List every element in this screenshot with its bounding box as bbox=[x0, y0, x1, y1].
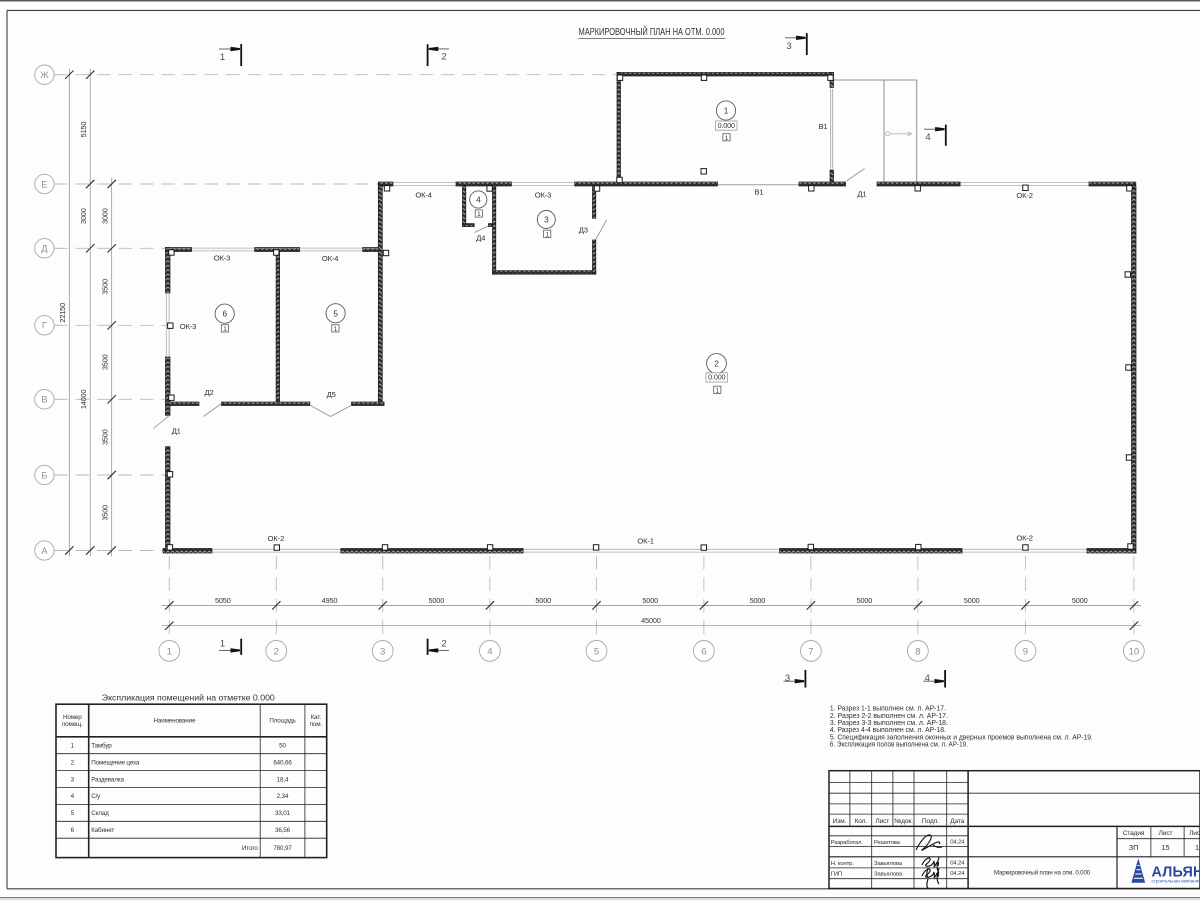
svg-text:5000: 5000 bbox=[642, 596, 658, 605]
svg-text:ОК-4: ОК-4 bbox=[322, 254, 338, 263]
svg-text:ОК-3: ОК-3 bbox=[535, 191, 551, 200]
svg-text:Склад: Склад bbox=[91, 810, 109, 817]
svg-text:36,56: 36,56 bbox=[275, 827, 291, 834]
svg-text:ОК-2: ОК-2 bbox=[1016, 533, 1032, 542]
svg-text:строительная компания: строительная компания bbox=[1152, 879, 1200, 884]
svg-text:1: 1 bbox=[725, 135, 729, 142]
svg-text:4: 4 bbox=[487, 646, 493, 657]
svg-text:4: 4 bbox=[476, 195, 481, 205]
svg-text:45000: 45000 bbox=[641, 616, 661, 625]
svg-text:Подп.: Подп. bbox=[922, 818, 939, 825]
svg-text:В: В bbox=[41, 395, 47, 405]
svg-text:2,34: 2,34 bbox=[277, 793, 289, 800]
svg-text:Наименование: Наименование bbox=[153, 718, 195, 725]
svg-text:22150: 22150 bbox=[58, 303, 67, 323]
svg-text:ЗП: ЗП bbox=[1129, 843, 1138, 852]
svg-text:Г: Г bbox=[42, 321, 47, 331]
svg-text:5000: 5000 bbox=[750, 596, 766, 605]
svg-text:Д: Д bbox=[41, 244, 48, 254]
svg-text:5150: 5150 bbox=[79, 122, 88, 138]
svg-text:Кат.: Кат. bbox=[311, 714, 322, 721]
svg-text:Лист: Лист bbox=[875, 818, 889, 825]
svg-text:5: 5 bbox=[594, 646, 599, 657]
svg-text:Помещение цеха: Помещение цеха bbox=[91, 760, 140, 767]
svg-text:Разработал: Разработал bbox=[831, 840, 862, 846]
svg-text:4950: 4950 bbox=[322, 596, 338, 605]
svg-text:3: 3 bbox=[786, 41, 791, 52]
svg-text:Дата: Дата bbox=[950, 818, 964, 825]
svg-text:780,97: 780,97 bbox=[273, 845, 292, 852]
svg-text:4: 4 bbox=[925, 132, 930, 143]
svg-text:Экспликация помещений на отмет: Экспликация помещений на отметке 0.000 bbox=[102, 692, 275, 702]
svg-text:6: 6 bbox=[222, 309, 227, 319]
svg-text:А: А bbox=[41, 546, 48, 556]
svg-text:Решетова: Решетова bbox=[874, 840, 901, 846]
svg-text:1: 1 bbox=[724, 106, 729, 116]
svg-text:Д2: Д2 bbox=[204, 388, 213, 397]
svg-text:5000: 5000 bbox=[857, 596, 873, 605]
svg-text:пом.: пом. bbox=[310, 721, 323, 728]
svg-text:4: 4 bbox=[925, 673, 930, 684]
svg-text:Стадия: Стадия bbox=[1123, 830, 1145, 837]
svg-text:3500: 3500 bbox=[100, 279, 109, 295]
svg-text:ОК-1: ОК-1 bbox=[637, 536, 653, 545]
svg-text:Маркировочный план на отм. 0.0: Маркировочный план на отм. 0.000 bbox=[994, 869, 1090, 877]
svg-text:5000: 5000 bbox=[428, 596, 444, 605]
svg-text:3500: 3500 bbox=[100, 505, 109, 521]
svg-text:Завьялова: Завьялова bbox=[874, 871, 903, 877]
svg-text:0.000: 0.000 bbox=[708, 373, 725, 382]
svg-text:1: 1 bbox=[220, 52, 225, 63]
svg-text:ОК-3: ОК-3 bbox=[214, 254, 230, 263]
svg-text:1: 1 bbox=[716, 387, 720, 394]
svg-text:1: 1 bbox=[545, 231, 549, 238]
svg-text:0.000: 0.000 bbox=[718, 121, 735, 130]
svg-text:ОК-4: ОК-4 bbox=[415, 191, 431, 200]
svg-text:Раздевалка: Раздевалка bbox=[91, 776, 124, 783]
svg-text:3500: 3500 bbox=[100, 429, 109, 445]
svg-text:Д3: Д3 bbox=[579, 226, 588, 235]
svg-text:Номер: Номер bbox=[63, 714, 82, 721]
svg-text:Лист: Лист bbox=[1159, 830, 1173, 837]
svg-text:5000: 5000 bbox=[1072, 596, 1088, 605]
svg-text:ОК-2: ОК-2 bbox=[268, 534, 284, 543]
svg-text:В1: В1 bbox=[819, 122, 828, 131]
svg-text:1: 1 bbox=[334, 326, 338, 333]
svg-text:Кабинет: Кабинет bbox=[91, 826, 114, 834]
svg-text:Д4: Д4 bbox=[476, 234, 485, 243]
svg-text:Изм.: Изм. bbox=[833, 818, 847, 825]
svg-text:МАРКИРОВОЧНЫЙ ПЛАН НА ОТМ. 0.0: МАРКИРОВОЧНЫЙ ПЛАН НА ОТМ. 0.000 bbox=[579, 26, 725, 38]
svg-text:1: 1 bbox=[1195, 843, 1199, 852]
svg-text:10: 10 bbox=[1129, 646, 1140, 657]
svg-text:ОК-2: ОК-2 bbox=[1016, 191, 1032, 200]
svg-text:7: 7 bbox=[808, 646, 813, 657]
svg-text:2: 2 bbox=[441, 52, 446, 63]
svg-text:Д5: Д5 bbox=[327, 390, 336, 399]
svg-text:33,01: 33,01 bbox=[275, 810, 291, 817]
svg-text:3500: 3500 bbox=[100, 354, 109, 370]
svg-text:04.24: 04.24 bbox=[950, 871, 965, 877]
svg-text:Итого: Итого bbox=[242, 845, 258, 852]
svg-text:5: 5 bbox=[333, 308, 338, 318]
svg-text:ОК-3: ОК-3 bbox=[180, 322, 196, 331]
svg-text:Кол.: Кол. bbox=[855, 818, 868, 825]
svg-text:Завьялова: Завьялова bbox=[874, 861, 903, 867]
svg-text:5000: 5000 bbox=[535, 596, 551, 605]
svg-text:50: 50 bbox=[279, 743, 286, 750]
svg-text:1: 1 bbox=[167, 646, 172, 657]
svg-text:640,66: 640,66 bbox=[273, 760, 292, 767]
svg-text:1: 1 bbox=[477, 211, 481, 218]
svg-text:№док.: №док. bbox=[894, 818, 913, 825]
svg-text:14000: 14000 bbox=[79, 390, 88, 410]
svg-text:Лис: Лис bbox=[1189, 830, 1200, 837]
svg-text:5050: 5050 bbox=[215, 596, 231, 605]
svg-text:6. Экспликация полов выполнена: 6. Экспликация полов выполнена см. л. АР… bbox=[830, 740, 968, 749]
svg-text:Д1: Д1 bbox=[172, 427, 181, 436]
svg-text:2: 2 bbox=[274, 646, 279, 657]
svg-text:04.24: 04.24 bbox=[950, 840, 965, 846]
svg-text:9: 9 bbox=[1023, 646, 1028, 657]
svg-text:Е: Е bbox=[41, 179, 47, 189]
svg-text:15: 15 bbox=[1162, 843, 1170, 852]
svg-text:3: 3 bbox=[785, 673, 790, 684]
svg-text:2: 2 bbox=[714, 359, 719, 369]
svg-text:8: 8 bbox=[915, 646, 920, 657]
svg-text:3: 3 bbox=[380, 646, 385, 657]
svg-text:В1: В1 bbox=[755, 188, 764, 197]
svg-text:помещ.: помещ. bbox=[62, 721, 83, 728]
svg-text:ГИП: ГИП bbox=[831, 871, 842, 877]
svg-text:Н. контр.: Н. контр. bbox=[831, 861, 854, 867]
svg-text:Ж: Ж bbox=[40, 70, 49, 80]
svg-text:С/у: С/у bbox=[91, 793, 101, 800]
svg-text:Д1: Д1 bbox=[857, 190, 866, 199]
svg-text:Площадь: Площадь bbox=[269, 718, 296, 725]
svg-text:3000: 3000 bbox=[100, 208, 109, 224]
svg-text:3000: 3000 bbox=[79, 208, 88, 224]
svg-text:1: 1 bbox=[223, 326, 227, 333]
svg-text:1: 1 bbox=[220, 639, 225, 650]
svg-text:2: 2 bbox=[441, 639, 446, 650]
svg-text:5000: 5000 bbox=[964, 596, 980, 605]
svg-text:Б: Б bbox=[41, 470, 47, 480]
svg-text:04.24: 04.24 bbox=[950, 861, 965, 867]
svg-text:3: 3 bbox=[544, 215, 549, 225]
svg-text:18,4: 18,4 bbox=[277, 776, 289, 783]
svg-text:Тамбур: Тамбур bbox=[91, 742, 112, 750]
svg-text:6: 6 bbox=[701, 646, 706, 657]
